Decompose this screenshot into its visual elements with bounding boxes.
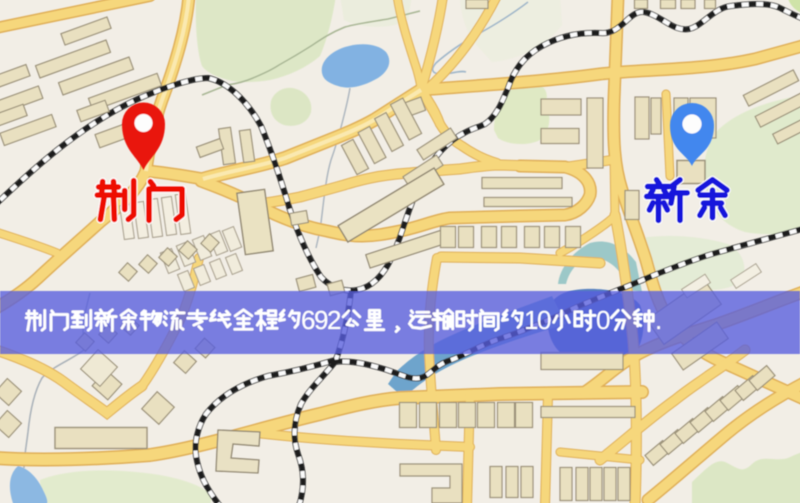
svg-text:0: 0 [537,305,551,335]
svg-text:2: 2 [327,305,341,335]
svg-text:0: 0 [596,305,610,335]
svg-text:.: . [655,305,662,335]
